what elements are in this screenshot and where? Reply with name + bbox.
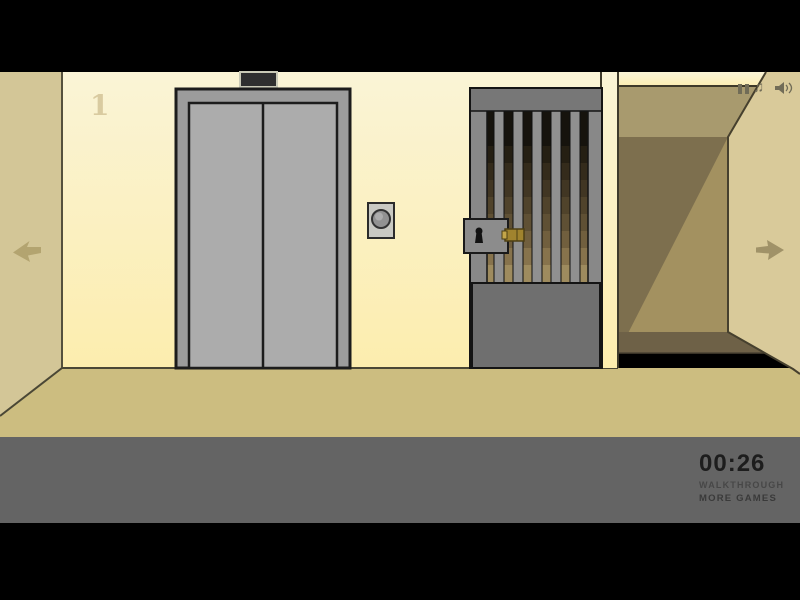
- pause-icon[interactable]: [737, 83, 751, 95]
- gate-lock-box[interactable]: [464, 219, 508, 253]
- scene-canvas: [0, 0, 800, 600]
- walkthrough-link[interactable]: WALKTHROUGH: [699, 480, 789, 490]
- brass-latch[interactable]: [505, 229, 524, 241]
- wall-pillar: [601, 72, 618, 368]
- music-note-icon[interactable]: ♫: [753, 79, 764, 96]
- game-stage: 1 ♫ 00:26 WALKTHROUGH MORE GAMES: [0, 0, 800, 600]
- gate-bottom-panel: [472, 283, 600, 368]
- left-side-wall: [0, 72, 62, 416]
- countdown-timer: 00:26: [699, 451, 789, 477]
- gate-header: [470, 88, 602, 111]
- hud-text-block: 00:26 WALKTHROUGH MORE GAMES: [699, 451, 789, 504]
- floor-number-label: 1: [90, 92, 109, 120]
- hud-bar: [0, 437, 800, 523]
- gate-bar[interactable]: [513, 110, 523, 283]
- gate-bar[interactable]: [551, 110, 561, 283]
- call-button-highlight: [375, 213, 383, 221]
- gate-bar[interactable]: [532, 110, 542, 283]
- gate-bar[interactable]: [494, 110, 504, 283]
- brass-latch-knob: [502, 231, 507, 239]
- elevator-indicator-box: [240, 72, 277, 87]
- more-games-link[interactable]: MORE GAMES: [699, 493, 789, 504]
- gate-bar[interactable]: [570, 110, 580, 283]
- floor: [0, 368, 800, 437]
- speaker-icon[interactable]: [773, 81, 797, 97]
